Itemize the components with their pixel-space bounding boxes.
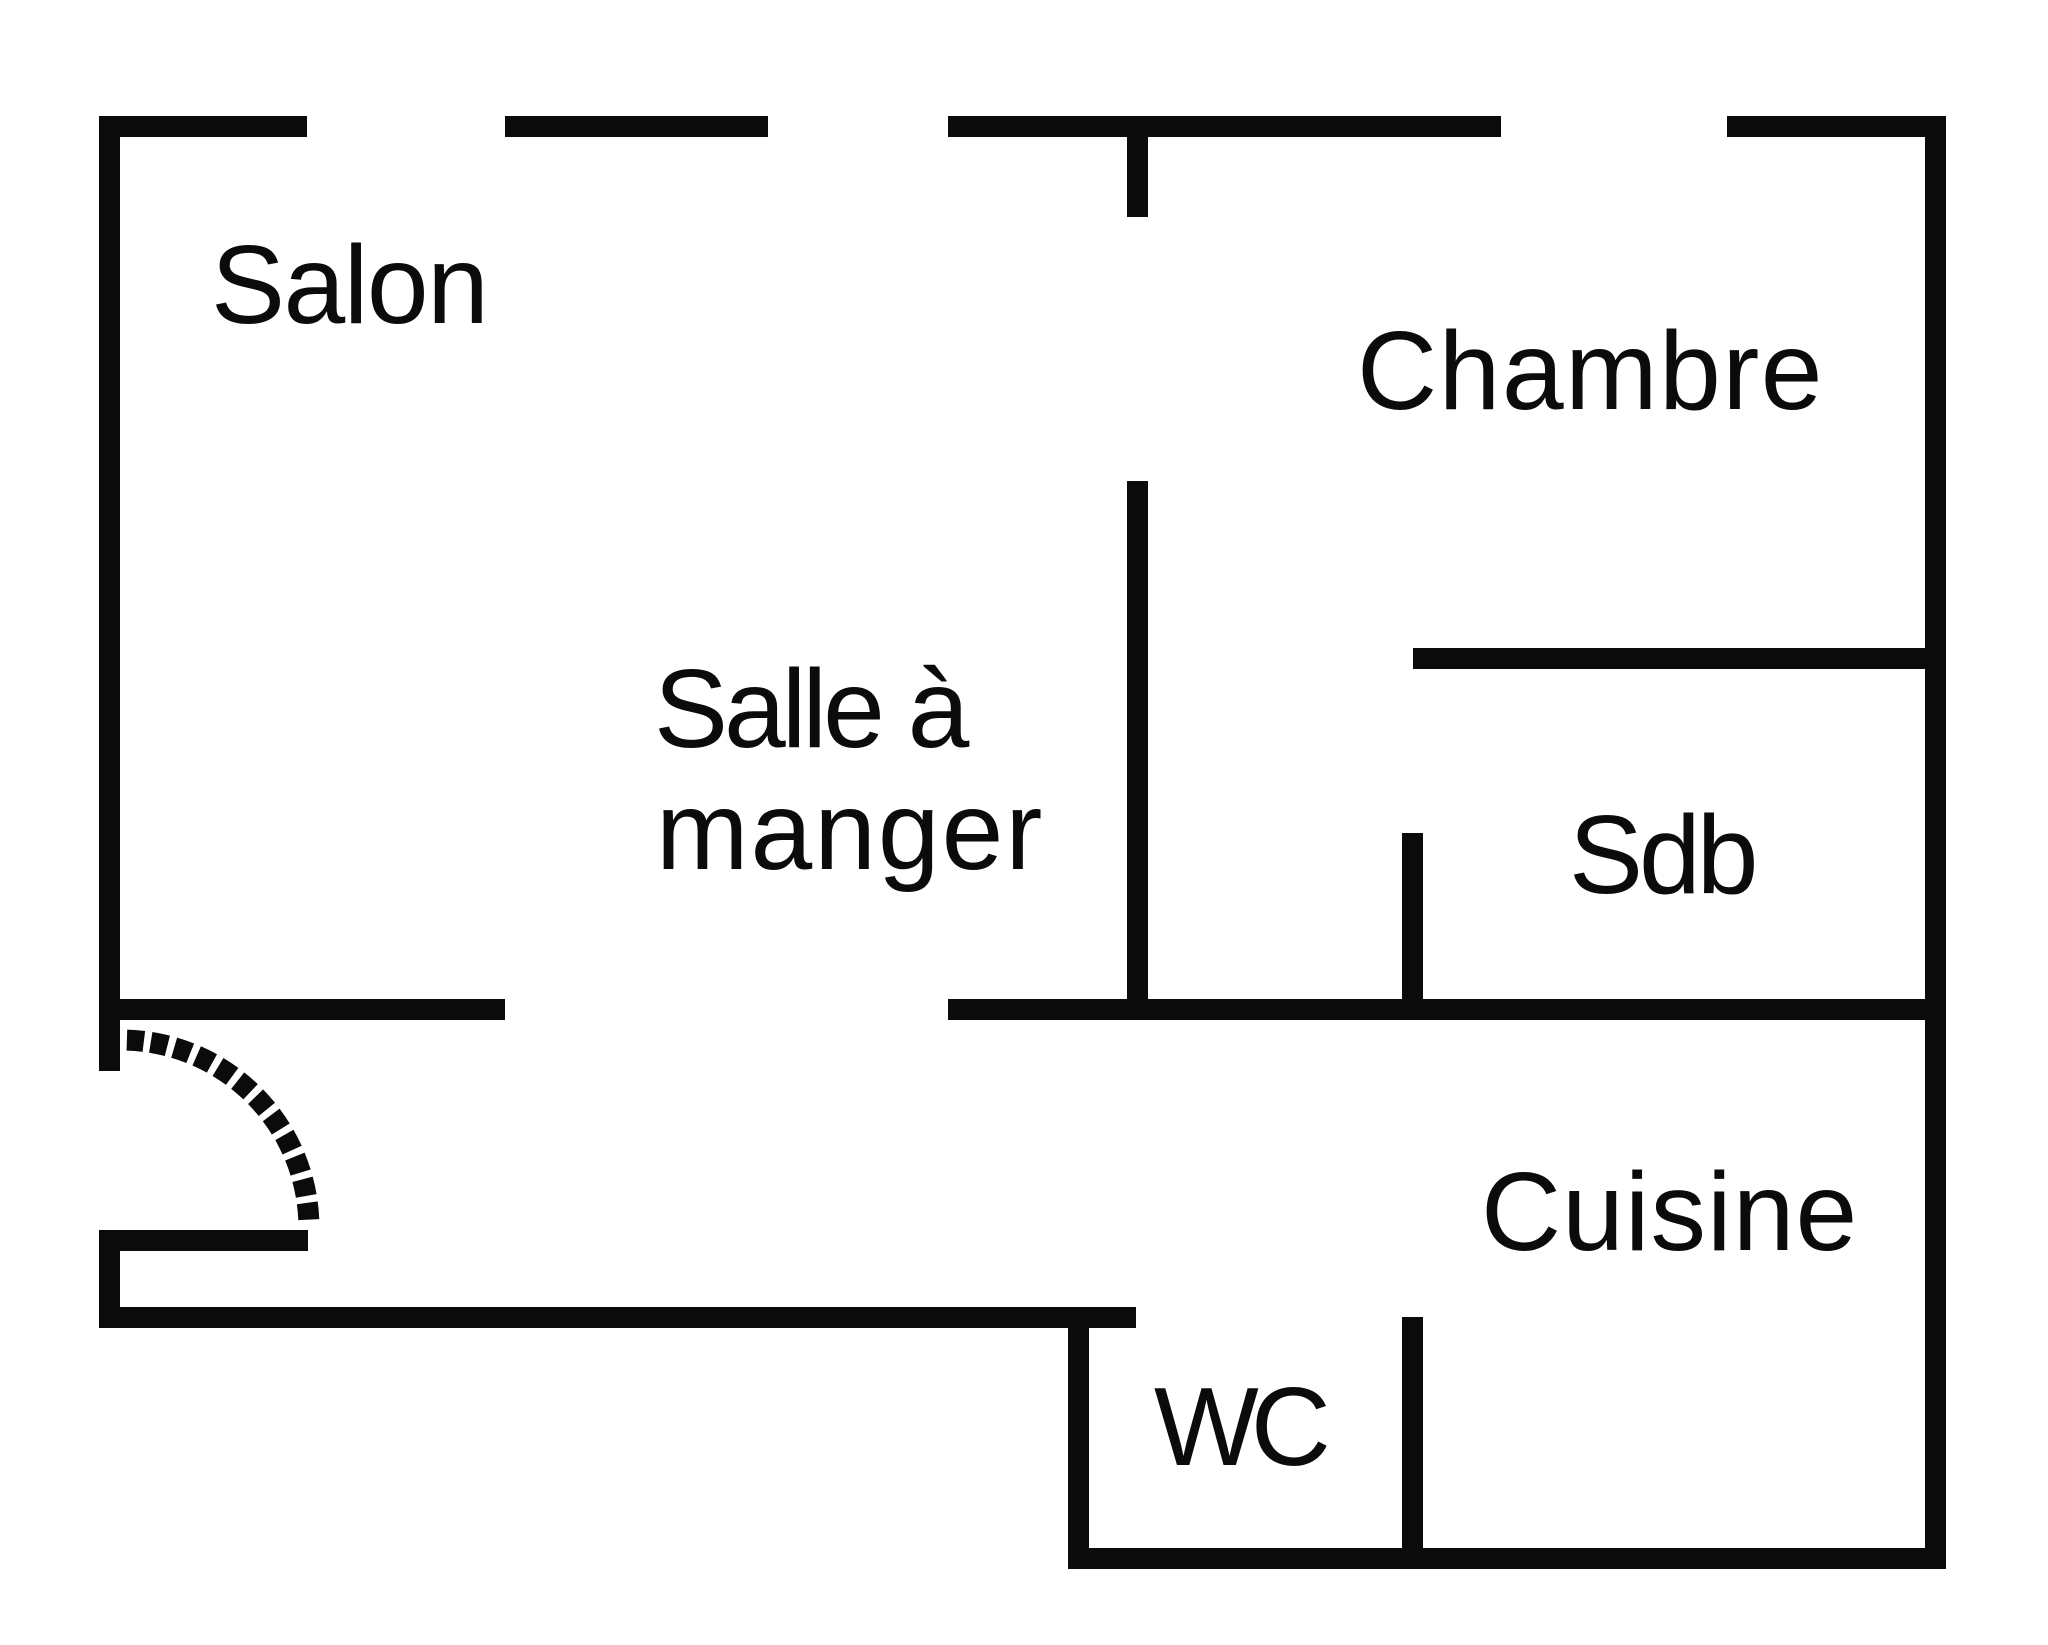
- svg-text:Chambre: Chambre: [1357, 309, 1824, 433]
- svg-text:manger: manger: [656, 769, 1044, 893]
- svg-text:Salon: Salon: [211, 223, 487, 347]
- svg-text:Salle à: Salle à: [654, 647, 970, 771]
- svg-text:Sdb: Sdb: [1569, 793, 1755, 917]
- svg-text:Cuisine: Cuisine: [1481, 1150, 1858, 1274]
- svg-text:WC: WC: [1154, 1365, 1327, 1489]
